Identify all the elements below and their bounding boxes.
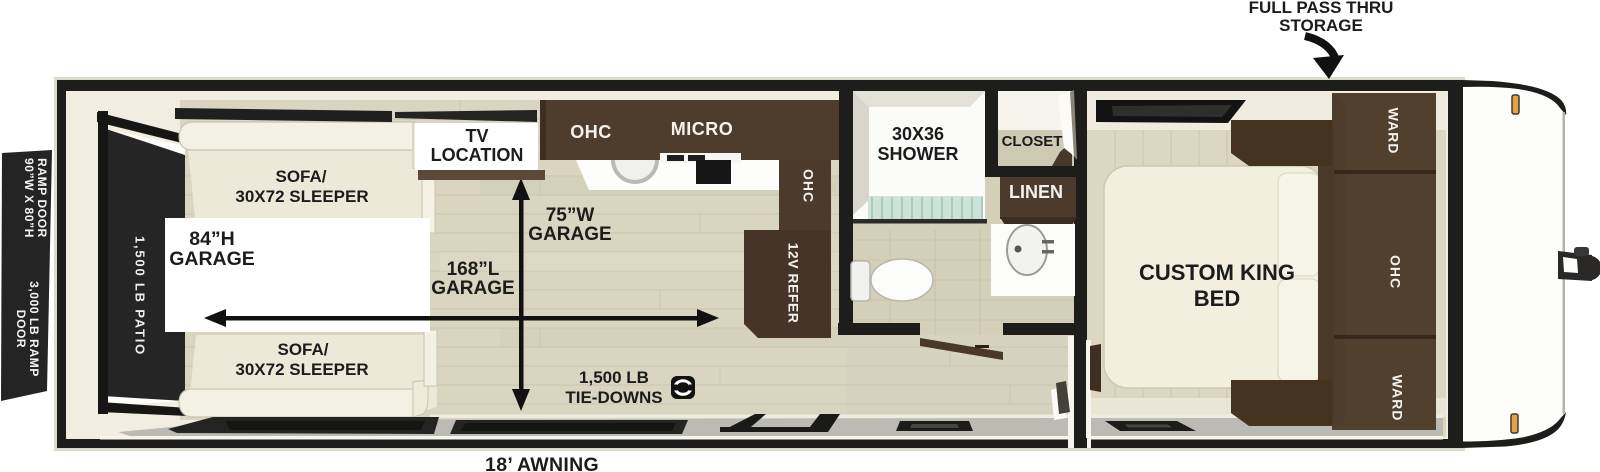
svg-text:LOCATION: LOCATION (431, 145, 524, 165)
svg-text:CLOSET: CLOSET (1002, 133, 1063, 150)
svg-text:84”H: 84”H (189, 228, 235, 250)
svg-text:OHC: OHC (570, 122, 612, 142)
svg-text:12V REFER: 12V REFER (785, 243, 801, 324)
svg-text:WARD: WARD (1389, 375, 1405, 422)
svg-text:3,000 LB RAMP: 3,000 LB RAMP (27, 281, 41, 377)
svg-text:FULL PASS THRU: FULL PASS THRU (1249, 0, 1394, 17)
svg-text:1,500 LB PATIO: 1,500 LB PATIO (133, 236, 148, 356)
svg-text:OHC: OHC (800, 169, 816, 203)
svg-text:GARAGE: GARAGE (528, 224, 611, 245)
svg-text:SOFA/: SOFA/ (277, 340, 328, 359)
svg-text:MICRO: MICRO (671, 119, 734, 139)
svg-text:RAMP DOOR: RAMP DOOR (35, 158, 49, 238)
svg-text:SHOWER: SHOWER (878, 144, 959, 164)
svg-text:TV: TV (465, 126, 488, 146)
svg-text:STORAGE: STORAGE (1279, 16, 1363, 35)
svg-text:30X36: 30X36 (892, 124, 944, 144)
svg-text:168”L: 168”L (447, 259, 500, 280)
svg-text:BED: BED (1194, 286, 1240, 311)
svg-text:1,500 LB: 1,500 LB (579, 368, 649, 387)
svg-text:WARD: WARD (1385, 108, 1401, 155)
svg-text:SOFA/: SOFA/ (275, 167, 326, 186)
svg-text:30X72 SLEEPER: 30X72 SLEEPER (235, 360, 368, 379)
svg-text:DOOR: DOOR (14, 310, 28, 348)
svg-text:GARAGE: GARAGE (431, 278, 514, 299)
svg-text:30X72 SLEEPER: 30X72 SLEEPER (235, 187, 368, 206)
svg-text:75”W: 75”W (546, 205, 595, 226)
svg-text:CUSTOM KING: CUSTOM KING (1139, 260, 1295, 285)
svg-text:90”W X 80”H: 90”W X 80”H (22, 158, 36, 238)
svg-text:GARAGE: GARAGE (169, 248, 255, 270)
svg-text:18’ AWNING: 18’ AWNING (485, 454, 599, 472)
svg-text:LINEN: LINEN (1009, 182, 1063, 202)
svg-text:OHC: OHC (1387, 255, 1403, 289)
svg-text:TIE-DOWNS: TIE-DOWNS (565, 388, 662, 407)
